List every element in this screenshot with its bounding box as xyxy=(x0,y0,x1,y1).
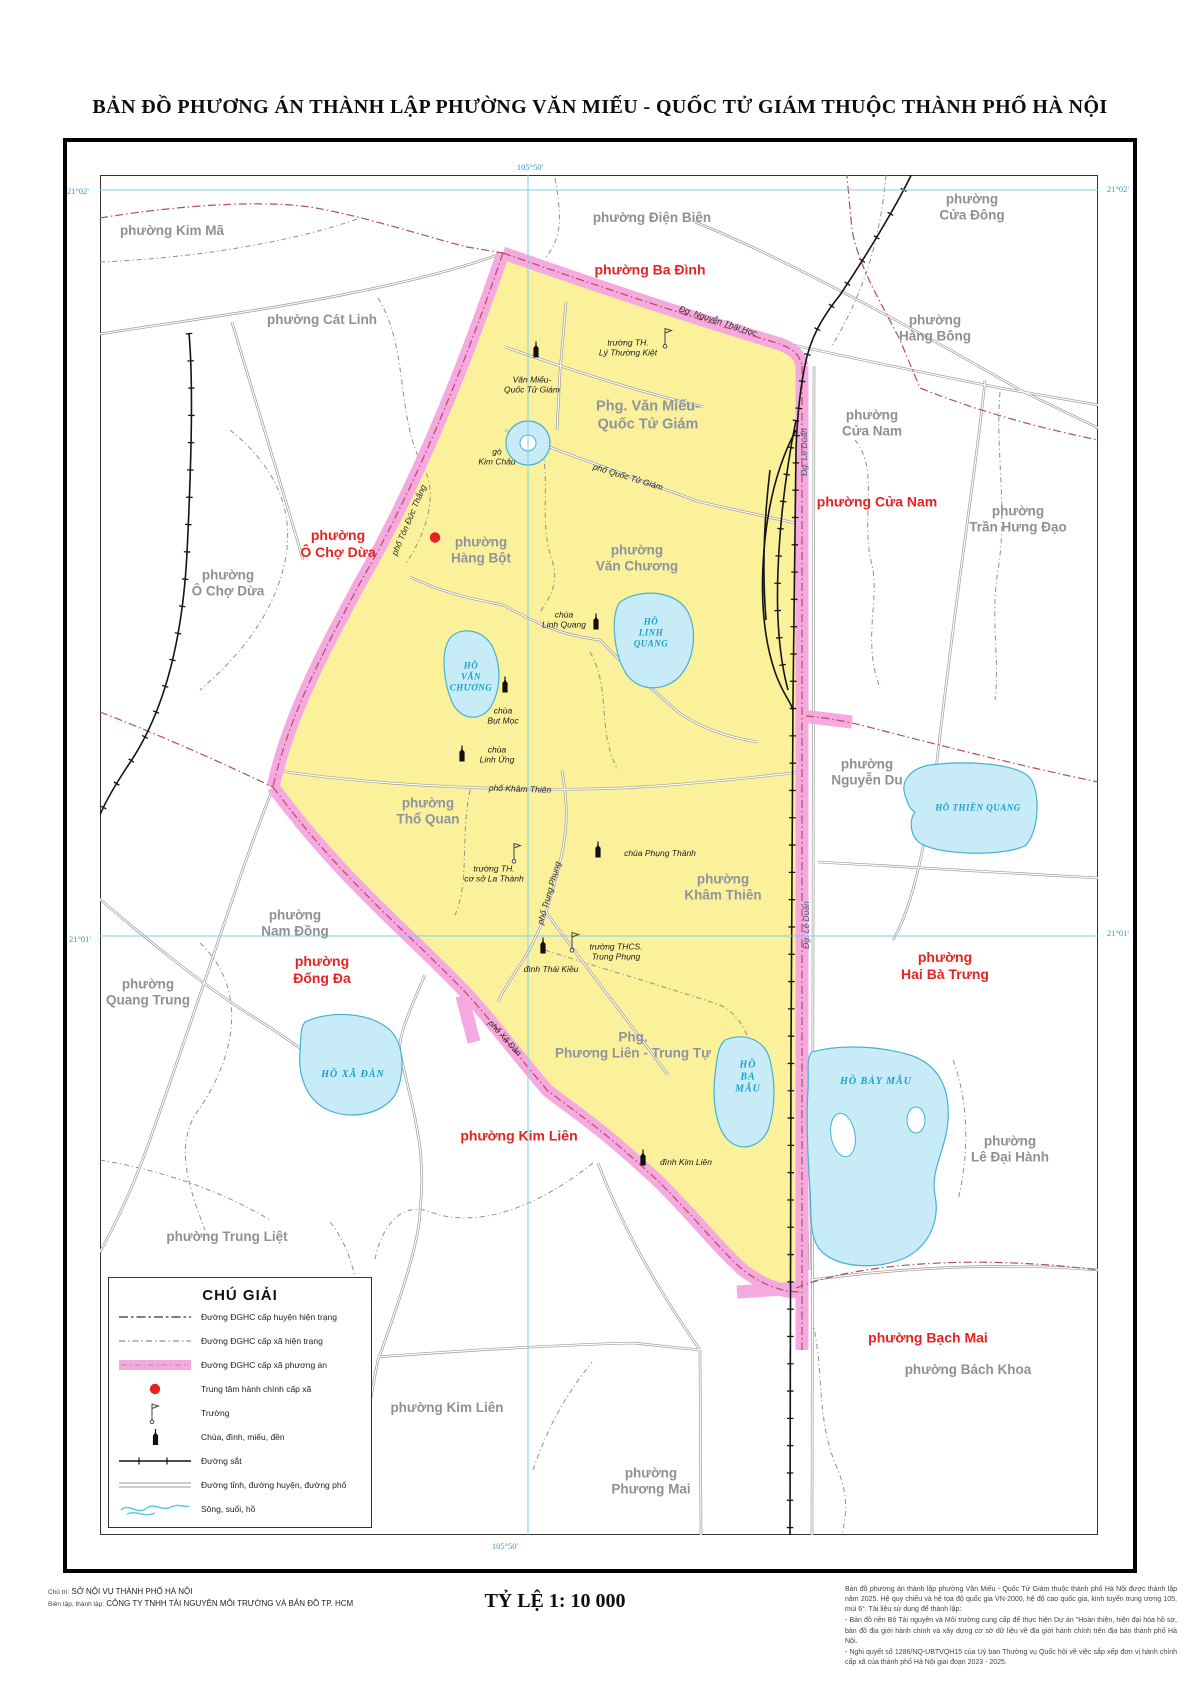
river-legend-symbol xyxy=(109,1498,201,1520)
map-scale: TỶ LỆ 1: 10 000 xyxy=(430,1590,680,1613)
credit1-prefix: Chủ trì: xyxy=(48,1589,69,1596)
legend-item-river: Sông, suối, hồ xyxy=(109,1497,371,1520)
legend-item-label: Trung tâm hành chính cấp xã xyxy=(201,1384,311,1394)
legend-item-road: Đường tỉnh, đường huyện, đường phố xyxy=(109,1473,371,1496)
flag-legend-symbol xyxy=(109,1402,201,1424)
legend-items: Đường ĐGHC cấp huyện hiện trạngĐường ĐGH… xyxy=(109,1305,371,1520)
band-legend-symbol xyxy=(109,1358,201,1372)
legend-item-label: Trường xyxy=(201,1408,229,1418)
legend-item-band: Đường ĐGHC cấp xã phương án xyxy=(109,1353,371,1376)
legend-item-label: Sông, suối, hồ xyxy=(201,1504,255,1514)
legend-box: CHÚ GIẢI Đường ĐGHC cấp huyện hiện trạng… xyxy=(108,1277,372,1528)
line-xa-legend-symbol xyxy=(109,1337,201,1345)
line-huyen-legend-symbol xyxy=(109,1313,201,1321)
legend-item-temple: Chùa, đình, miếu, đền xyxy=(109,1425,371,1448)
credit2-prefix: Biên tập, thành lập: xyxy=(48,1601,104,1608)
legend-item-flag: Trường xyxy=(109,1401,371,1424)
credit1-text: SỞ NỘI VỤ THÀNH PHỐ HÀ NỘI xyxy=(72,1587,193,1596)
map-notes: Bản đồ phương án thành lập phường Văn Mi… xyxy=(845,1585,1177,1669)
rail-legend-symbol xyxy=(109,1456,201,1466)
legend-item-label: Đường tỉnh, đường huyện, đường phố xyxy=(201,1480,346,1490)
legend-item-label: Đường sắt xyxy=(201,1456,242,1466)
legend-item-line-huyen: Đường ĐGHC cấp huyện hiện trạng xyxy=(109,1305,371,1328)
legend-item-dot: Trung tâm hành chính cấp xã xyxy=(109,1377,371,1400)
new-ward-polygon xyxy=(273,253,802,1290)
legend-item-label: Chùa, đình, miếu, đền xyxy=(201,1432,285,1442)
page-title: BẢN ĐỒ PHƯƠNG ÁN THÀNH LẬP PHƯỜNG VĂN MI… xyxy=(0,96,1200,119)
note-paragraph: Bản đồ phương án thành lập phường Văn Mi… xyxy=(845,1585,1177,1615)
credit2-text: CÔNG TY TNHH TÀI NGUYÊN MÔI TRƯỜNG VÀ BẢ… xyxy=(106,1599,353,1608)
legend-item-line-xa: Đường ĐGHC cấp xã hiện trạng xyxy=(109,1329,371,1352)
legend-item-label: Đường ĐGHC cấp huyện hiện trạng xyxy=(201,1312,337,1322)
map-credits: Chủ trì: SỞ NỘI VỤ THÀNH PHỐ HÀ NỘI Biên… xyxy=(48,1586,353,1610)
dot-legend-symbol xyxy=(109,1382,201,1396)
legend-item-label: Đường ĐGHC cấp xã hiện trạng xyxy=(201,1336,323,1346)
note-paragraph: - Nghị quyết số 1286/NQ-UBTVQH15 của Uỷ … xyxy=(845,1648,1177,1668)
note-paragraph: - Bản đồ nền Bộ Tài nguyên và Môi trường… xyxy=(845,1616,1177,1646)
legend-title: CHÚ GIẢI xyxy=(109,1287,371,1304)
temple-legend-symbol xyxy=(109,1428,201,1446)
road-legend-symbol xyxy=(109,1480,201,1490)
legend-item-label: Đường ĐGHC cấp xã phương án xyxy=(201,1360,327,1370)
legend-item-rail: Đường sắt xyxy=(109,1449,371,1472)
